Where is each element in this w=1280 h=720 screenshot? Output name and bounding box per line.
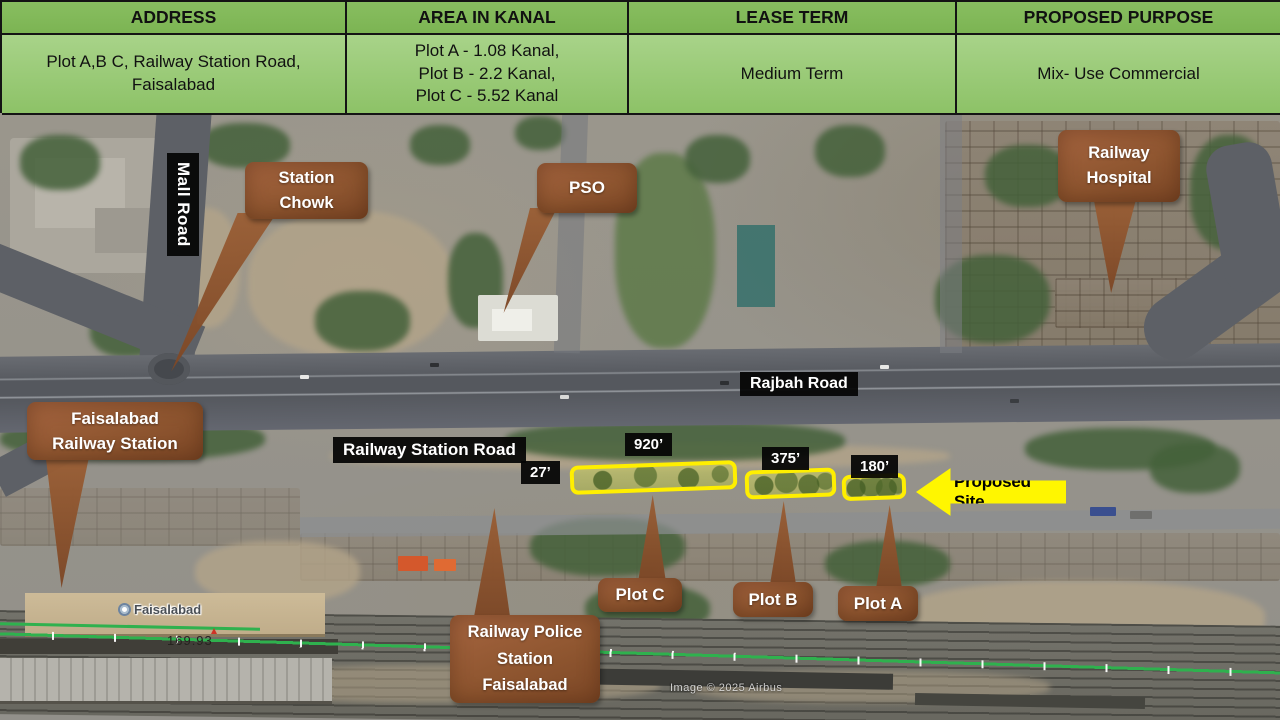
map-feature <box>95 208 155 253</box>
label-375ft: 375’ <box>762 447 809 470</box>
presentation-slide: ADDRESS AREA IN KANAL LEASE TERM PROPOSE… <box>0 0 1280 720</box>
callout-faisalabad-railway-station: FaisalabadRailway Station <box>27 402 203 460</box>
tree-cluster <box>515 116 565 150</box>
minor-road <box>940 113 962 353</box>
orange-container <box>398 556 428 571</box>
vehicle <box>880 365 889 369</box>
tree-cluster <box>410 125 470 165</box>
table-cell-proposed-purpose: Mix- Use Commercial <box>957 35 1280 115</box>
table-header-area: AREA IN KANAL <box>347 2 629 35</box>
poi-faisalabad-label: Faisalabad <box>134 602 201 617</box>
orange-container <box>434 559 456 571</box>
vehicle <box>300 375 309 379</box>
petrol-station-canopy <box>492 309 532 331</box>
plot-c-outline <box>570 460 738 495</box>
label-180ft: 180’ <box>851 455 898 478</box>
table-header-proposed-purpose: PROPOSED PURPOSE <box>957 2 1280 35</box>
satellite-map: StationChowk PSO RailwayHospital Faisala… <box>0 113 1280 720</box>
poi-faisalabad: Faisalabad <box>118 602 201 617</box>
callout-plot-a: Plot A <box>838 586 918 621</box>
callout-railway-hospital: RailwayHospital <box>1058 130 1180 202</box>
tree-cluster <box>685 135 750 183</box>
track-number-label: 169.93 <box>167 633 213 648</box>
label-27ft: 27’ <box>521 461 560 484</box>
table-header-address: ADDRESS <box>2 2 347 35</box>
label-railway-station-road: Railway Station Road <box>333 437 526 463</box>
vehicle <box>430 363 439 367</box>
callout-railway-police-station: Railway PoliceStationFaisalabad <box>450 615 600 703</box>
property-info-table: ADDRESS AREA IN KANAL LEASE TERM PROPOSE… <box>0 0 1280 113</box>
platform-roof <box>0 658 332 704</box>
plot-b-outline <box>745 467 837 499</box>
label-mall-road: Mall Road <box>167 153 199 256</box>
table-cell-lease-term: Medium Term <box>629 35 957 115</box>
label-rajbah-road: Rajbah Road <box>740 372 858 396</box>
callout-pso: PSO <box>537 163 637 213</box>
vehicle <box>1130 511 1152 519</box>
vehicle <box>560 395 569 399</box>
vehicle <box>1010 399 1019 403</box>
roundabout <box>148 353 190 385</box>
callout-plot-b: Plot B <box>733 582 813 617</box>
vehicle <box>1090 507 1116 516</box>
table-header-lease-term: LEASE TERM <box>629 2 957 35</box>
tree-cluster <box>20 135 100 190</box>
tree-cluster <box>1150 443 1240 493</box>
table-cell-address: Plot A,B C, Railway Station Road, Faisal… <box>2 35 347 115</box>
map-feature <box>737 225 775 307</box>
tree-cluster <box>315 291 410 351</box>
vehicle <box>720 381 729 385</box>
map-feature <box>0 488 300 546</box>
table-cell-area: Plot A - 1.08 Kanal, Plot B - 2.2 Kanal,… <box>347 35 629 115</box>
tree-cluster <box>815 125 885 177</box>
minor-road <box>554 113 588 353</box>
label-920ft: 920’ <box>625 433 672 456</box>
train-station-icon <box>118 603 131 616</box>
callout-plot-c: Plot C <box>598 578 682 612</box>
imagery-attribution: Image © 2025 Airbus <box>670 682 782 694</box>
callout-station-chowk: StationChowk <box>245 162 368 219</box>
